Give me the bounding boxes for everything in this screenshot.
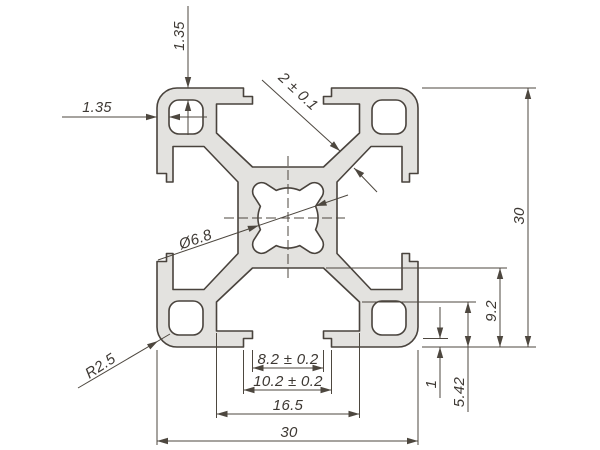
dim-slot-back-depth-label: 9.2 xyxy=(483,300,500,322)
arrowhead-down-icon xyxy=(497,336,503,347)
dim-top-wall-label: 1.35 xyxy=(172,21,188,51)
arrowhead-right-icon xyxy=(407,438,418,444)
arrowhead-down-icon xyxy=(525,336,531,347)
arrowhead-down-icon xyxy=(437,328,443,339)
dim-slot-cavity-depth-label: 5.42 xyxy=(451,376,468,407)
arrowhead-right-icon xyxy=(146,114,157,120)
arrowhead-up-icon xyxy=(497,268,503,279)
arrowhead-right-icon xyxy=(349,411,360,417)
arrowhead-up-icon xyxy=(525,88,531,99)
dim-slot-step-width-label: 10.2 ± 0.2 xyxy=(253,373,323,390)
arrowhead-left-icon xyxy=(157,438,168,444)
arrowhead-left-icon xyxy=(217,411,228,417)
dim-web-thickness-label: 2 ± 0.1 xyxy=(274,68,321,114)
arrowhead-down-icon xyxy=(185,77,191,88)
arrowhead-up-icon xyxy=(437,347,443,358)
dim-overall-height-label: 30 xyxy=(511,207,528,225)
dim-center-bore-label: Ø6.8 xyxy=(176,226,215,253)
arrowhead-down-icon xyxy=(465,336,471,347)
arrowhead-up-icon xyxy=(465,302,471,313)
dim-lip-step-depth-label: 1 xyxy=(423,380,440,389)
drawing-page: 1.35 1.35 2 ± 0.1 Ø6.8 R2.5 30 9.2 5.42 … xyxy=(0,0,600,450)
arrowhead-left-icon xyxy=(169,114,180,120)
dim-slot-opening-width-label: 8.2 ± 0.2 xyxy=(258,351,319,368)
dim-corner-radius-label: R2.5 xyxy=(82,350,119,382)
profile-drawing-canvas: 1.35 1.35 2 ± 0.1 Ø6.8 R2.5 30 9.2 5.42 … xyxy=(0,0,600,450)
arrowhead-up-icon xyxy=(185,100,191,111)
dim-overall-width-label: 30 xyxy=(280,424,298,441)
dim-slot-channel-width-label: 16.5 xyxy=(273,397,304,414)
dim-left-wall-label: 1.35 xyxy=(82,100,112,116)
arrowhead-diagonal-icon xyxy=(147,341,158,349)
